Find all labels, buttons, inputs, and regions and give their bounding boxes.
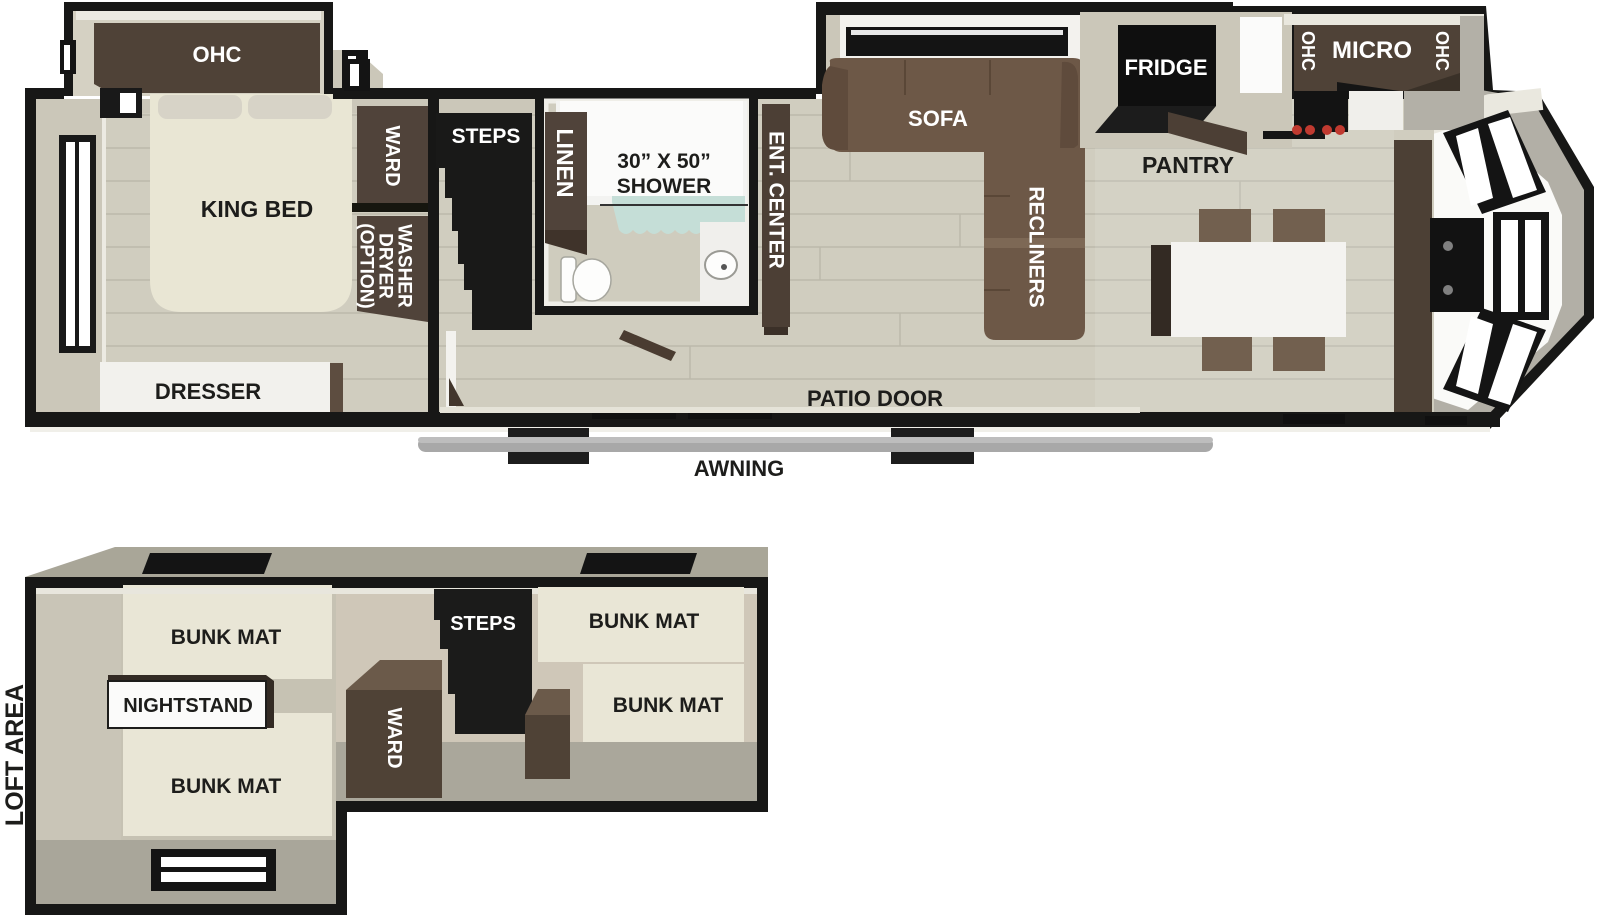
svg-text:DRESSER: DRESSER — [155, 379, 261, 404]
svg-text:BUNK MAT: BUNK MAT — [589, 610, 700, 633]
svg-text:KING BED: KING BED — [201, 196, 313, 222]
svg-text:WARD: WARD — [381, 125, 403, 186]
svg-text:30” X 50”: 30” X 50” — [617, 150, 710, 173]
svg-text:SHOWER: SHOWER — [617, 175, 712, 198]
svg-text:ENT. CENTER: ENT. CENTER — [765, 131, 788, 269]
svg-text:AWNING: AWNING — [694, 456, 784, 481]
svg-text:BUNK MAT: BUNK MAT — [171, 775, 282, 798]
svg-text:DRYER: DRYER — [375, 233, 396, 299]
svg-text:FRIDGE: FRIDGE — [1124, 55, 1207, 80]
svg-text:BUNK MAT: BUNK MAT — [613, 694, 724, 717]
svg-text:NIGHTSTAND: NIGHTSTAND — [123, 695, 253, 717]
svg-text:WASHER: WASHER — [394, 224, 415, 308]
svg-text:OHC: OHC — [1432, 31, 1452, 71]
svg-text:OHC: OHC — [1298, 31, 1318, 71]
svg-text:BUNK MAT: BUNK MAT — [171, 626, 282, 649]
svg-text:OHC: OHC — [193, 42, 242, 67]
svg-text:PATIO DOOR: PATIO DOOR — [807, 386, 943, 411]
svg-text:RECLINERS: RECLINERS — [1025, 186, 1048, 307]
svg-text:STEPS: STEPS — [450, 613, 516, 635]
svg-text:SOFA: SOFA — [908, 106, 968, 131]
svg-text:LINEN: LINEN — [552, 129, 578, 198]
svg-text:MICRO: MICRO — [1332, 37, 1412, 64]
svg-text:PANTRY: PANTRY — [1142, 152, 1234, 178]
svg-text:WARD: WARD — [383, 707, 405, 768]
svg-text:STEPS: STEPS — [452, 125, 521, 148]
svg-text:LOFT AREA: LOFT AREA — [1, 684, 29, 826]
svg-text:(OPTION): (OPTION) — [356, 223, 377, 309]
